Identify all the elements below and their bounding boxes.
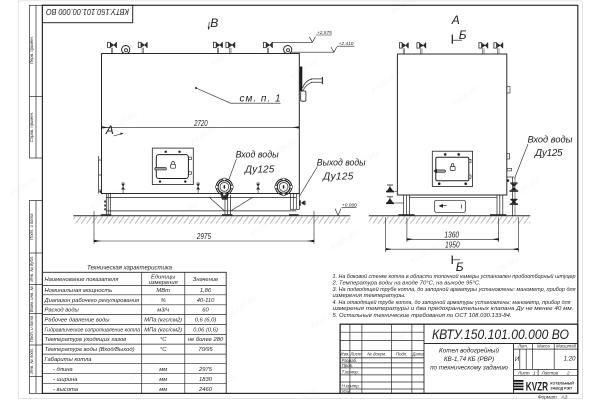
- svg-text:МПа (кгс/см2): МПа (кгс/см2): [144, 318, 182, 324]
- svg-text:А: А: [451, 13, 460, 27]
- svg-text:- длина: - длина: [53, 367, 73, 373]
- svg-text:1360: 1360: [444, 230, 459, 239]
- svg-text:Выход воды: Выход воды: [317, 157, 366, 168]
- svg-text:60: 60: [202, 308, 209, 314]
- svg-text:+2.575: +2.575: [317, 30, 332, 36]
- svg-text:Формат: Формат: [538, 394, 557, 400]
- svg-text:Температура воды (Вход/Выход): Температура воды (Вход/Выход): [45, 347, 135, 353]
- svg-text:Подп. и дата: Подп. и дата: [29, 213, 34, 240]
- svg-text:Масштаб: Масштаб: [556, 344, 577, 349]
- svg-text:Пров.: Пров.: [342, 363, 353, 368]
- svg-text:Расход воды: Расход воды: [45, 308, 80, 314]
- svg-text:см. п. 1: см. п. 1: [240, 94, 281, 105]
- svg-text:Инв. № подл.: Инв. № подл.: [29, 348, 34, 374]
- svg-text:2975: 2975: [198, 367, 213, 373]
- svg-text:Значение: Значение: [193, 277, 219, 283]
- svg-text:+0.000: +0.000: [342, 202, 357, 208]
- svg-text:0,6 (6,0): 0,6 (6,0): [195, 318, 217, 324]
- svg-text:мм: мм: [159, 367, 167, 373]
- svg-text:Рабочее давление воды: Рабочее давление воды: [45, 318, 111, 324]
- svg-text:Подп. и дата: Подп. и дата: [29, 315, 34, 342]
- svg-text:1:20: 1:20: [564, 357, 576, 363]
- svg-text:Т.контр.: Т.контр.: [342, 370, 359, 375]
- svg-text:Гидравлическое сопротивление к: Гидравлическое сопротивление котла: [45, 328, 141, 334]
- svg-text:0,06 (0,6): 0,06 (0,6): [193, 328, 218, 334]
- svg-text:мм: мм: [159, 387, 167, 393]
- svg-text:Утв.: Утв.: [342, 389, 352, 394]
- svg-text:- высота: - высота: [53, 387, 79, 393]
- svg-text:Б: Б: [459, 28, 467, 42]
- svg-text:Температура уходящих газов: Температура уходящих газов: [45, 337, 127, 343]
- svg-text:2. Температура воды на входе: 2. Температура воды на входе 70°С, на вы…: [332, 281, 481, 287]
- svg-text:В: В: [210, 16, 218, 30]
- svg-text:Б: Б: [456, 260, 464, 274]
- svg-text:KVZR: KVZR: [526, 381, 549, 393]
- svg-text:3. На подводящей трубе котла,: 3. На подводящей трубе котла, до запорно…: [333, 286, 577, 293]
- svg-text:измерения: измерения: [149, 280, 178, 286]
- svg-text:Н.контр.: Н.контр.: [342, 384, 360, 389]
- svg-text:1830: 1830: [199, 377, 213, 383]
- svg-text:°С: °С: [160, 337, 167, 343]
- svg-text:+2.410: +2.410: [339, 41, 354, 47]
- svg-text:А3: А3: [561, 394, 568, 400]
- svg-text:Лит.: Лит.: [517, 344, 528, 349]
- svg-text:Подп.: Подп.: [396, 352, 407, 357]
- svg-text:И: И: [515, 357, 520, 363]
- svg-text:А: А: [105, 123, 114, 137]
- svg-text:измерения температуры.: измерения температуры.: [333, 293, 406, 299]
- svg-text:Наименование показателя: Наименование показателя: [45, 277, 119, 283]
- svg-text:70/95: 70/95: [198, 347, 213, 353]
- svg-text:1950: 1950: [445, 241, 460, 250]
- svg-text:40-110: 40-110: [197, 298, 215, 304]
- svg-text:КОТЕЛЬНЫЙ: КОТЕЛЬНЫЙ: [550, 382, 574, 386]
- svg-text:1,86: 1,86: [200, 288, 212, 294]
- svg-text:№ докум.: № докум.: [367, 352, 386, 357]
- svg-text:Инв. № дубл.: Инв. № дубл.: [29, 256, 34, 282]
- svg-text:измерения температуры и два пр: измерения температуры и два предохраните…: [333, 306, 574, 312]
- svg-text:м3/ч: м3/ч: [157, 308, 169, 314]
- svg-text:Лист: Лист: [517, 371, 530, 376]
- svg-text:КВ-1,74 КБ (РВР): КВ-1,74 КБ (РВР): [444, 356, 494, 363]
- svg-text:Вход воды: Вход воды: [236, 150, 279, 161]
- svg-text:Взам. инв. №: Взам. инв. №: [29, 286, 34, 312]
- svg-text:КВТУ.150.101.00.000 ВО: КВТУ.150.101.00.000 ВО: [432, 327, 569, 342]
- svg-text:Котел водогрейный: Котел водогрейный: [439, 347, 499, 355]
- svg-text:Ду125: Ду125: [534, 148, 563, 159]
- svg-text:°С: °С: [160, 347, 167, 353]
- svg-text:МВт: МВт: [156, 288, 170, 294]
- svg-text:4. На отводящей трубе котла,: 4. На отводящей трубе котла, до запорной…: [333, 299, 572, 306]
- svg-text:2: 2: [566, 371, 570, 376]
- svg-text:МПа (кгс/см2): МПа (кгс/см2): [144, 328, 182, 334]
- svg-text:ЗАВОД РЭП: ЗАВОД РЭП: [550, 386, 572, 390]
- svg-text:Лист: Лист: [349, 352, 361, 357]
- svg-text:Диапазон рабочего регулировани: Диапазон рабочего регулирования: [44, 298, 140, 304]
- svg-text:Ду125: Ду125: [244, 164, 275, 175]
- svg-text:2720: 2720: [193, 119, 208, 128]
- svg-text:КВТУ.150.101.00.000 ВО: КВТУ.150.101.00.000 ВО: [46, 7, 129, 17]
- svg-text:Изм.: Изм.: [340, 352, 349, 357]
- svg-text:Габариты котла: Габариты котла: [45, 357, 93, 363]
- svg-text:Листов: Листов: [541, 371, 559, 376]
- svg-text:Техническая характеристика: Техническая характеристика: [87, 265, 173, 271]
- svg-text:Справ. примен.: Справ. примен.: [29, 112, 34, 142]
- svg-text:мм: мм: [159, 377, 167, 383]
- svg-text:Ду125: Ду125: [322, 172, 354, 183]
- svg-text:Вход воды: Вход воды: [528, 135, 573, 146]
- svg-text:не более 280: не более 280: [188, 337, 224, 343]
- svg-text:Дата: Дата: [411, 352, 424, 357]
- svg-text:- ширина: - ширина: [53, 377, 78, 383]
- svg-text:Масса: Масса: [537, 344, 550, 349]
- svg-text:%: %: [161, 298, 166, 304]
- svg-text:1. На боковой стенке котла в: 1. На боковой стенке котла в области топ…: [333, 273, 577, 280]
- svg-text:5. Остальные технические треб: 5. Остальные технические требования по О…: [333, 313, 512, 319]
- svg-text:Номинальная мощность: Номинальная мощность: [45, 288, 113, 294]
- svg-text:по техническому заданию: по техническому заданию: [430, 364, 508, 372]
- svg-text:2975: 2975: [196, 232, 212, 241]
- svg-text:2460: 2460: [198, 387, 213, 393]
- svg-text:Перв. примен.: Перв. примен.: [29, 36, 34, 64]
